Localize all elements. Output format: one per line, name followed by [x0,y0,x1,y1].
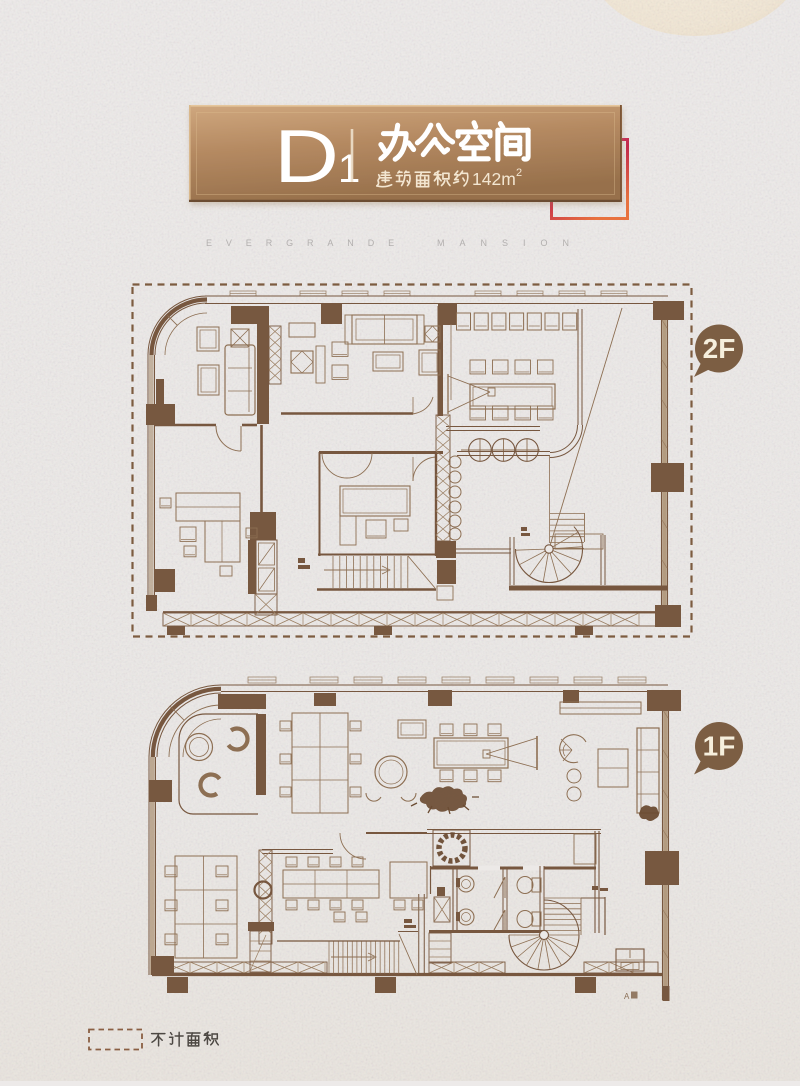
svg-text:A: A [624,992,630,1001]
svg-text:1F: 1F [703,731,736,762]
svg-text:142m: 142m [472,169,516,189]
svg-text:D: D [274,114,339,198]
svg-text:MANSION: MANSION [437,238,584,248]
svg-text:2: 2 [516,167,522,179]
svg-text:2F: 2F [703,333,736,364]
svg-text:EVERGRANDE: EVERGRANDE [206,238,408,248]
svg-text:1: 1 [338,147,360,191]
